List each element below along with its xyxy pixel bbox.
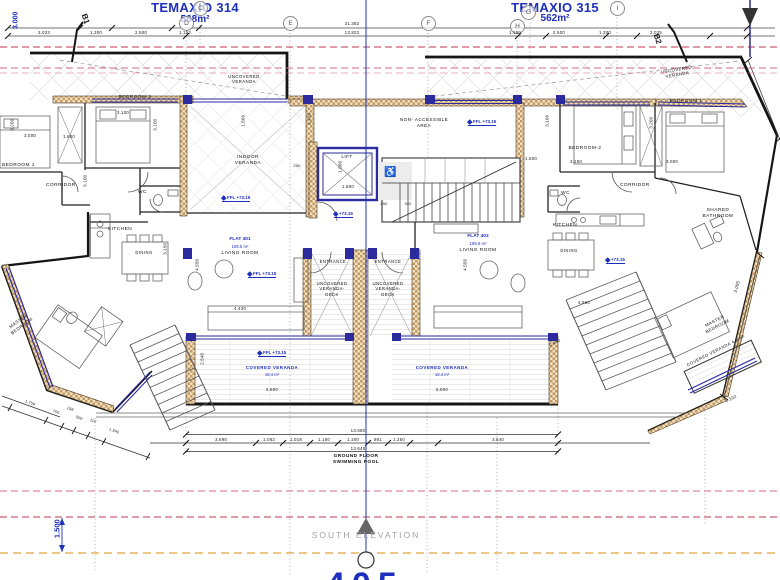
dim-bottom-6: 891 [368, 437, 388, 443]
room-label-shared-bath: SHARED BATHROOM [698, 208, 738, 220]
south-elevation-label: SOUTH ELEVATION [293, 530, 439, 541]
plot-left-area: 568m² [110, 14, 280, 27]
dim-lf-5: 3.200 [9, 110, 15, 140]
ffl-diamond-icon [247, 271, 252, 276]
flat401-label: FLAT 401 [220, 237, 260, 243]
covered-veranda-right-area: 18.4 m² [398, 372, 486, 377]
ffl-diamond-icon [257, 350, 262, 355]
entrance-right-label: ENTRANCE [366, 259, 410, 264]
flat401-area: 109.5 m² [220, 244, 260, 249]
dim-core-c: 250 [288, 164, 306, 169]
covered-veranda-right-label: COVERED VERANDA [398, 365, 486, 371]
dim-south-gap: 1.500 [52, 512, 61, 546]
dim-rf-6: 4.560 [566, 300, 602, 306]
covered-veranda-left-area: 18.4 m² [228, 372, 316, 377]
floor-plan-sheet: TEMAXIO 314 568m² TEMAXIO 315 562m² C D … [0, 0, 780, 580]
room-label-wc-right: WC [561, 191, 577, 197]
covered-veranda-left-label: COVERED VERANDA [228, 365, 316, 371]
external-stairs-right [566, 272, 676, 390]
dim-rf-7: 4.550 [462, 250, 468, 280]
dim-rf-1: 1.600 [518, 156, 544, 162]
dim-top-left-2: 1.300 [79, 30, 113, 36]
dim-top-left-1: 3.023 [27, 30, 61, 36]
dim-top-left-3: 2.500 [124, 30, 158, 36]
dim-bottom-8: 3.540 [485, 437, 511, 443]
entrance-left-label: ENTRANCE [311, 259, 355, 264]
room-label-kitchen-left: KITCHEN [108, 227, 160, 233]
room-label-bedroom2-right: BEDROOM-2 [557, 146, 613, 152]
veranda-deck-left-label: UNCOVERED VERANDA- DECK [308, 281, 356, 297]
dim-lf-10: 3.150 [162, 234, 168, 264]
flat402-area: 109.5 m² [458, 241, 498, 246]
grid-marker-f: F [421, 16, 436, 31]
non-accessible-area-label: NON- ACCESSIBLE AREA [390, 117, 458, 128]
dim-veranda-depth: 2.540 [199, 345, 205, 373]
room-label-bedroom2-left: BEDROOM 2 [107, 95, 163, 101]
dim-lf-9: 4.550 [194, 250, 200, 280]
grid-marker-c: C [193, 1, 208, 16]
room-label-living-right: LIVING ROOM [446, 248, 510, 254]
dim-veranda-left: 6.800 [248, 387, 296, 393]
room-label-wc-left: WC [138, 190, 154, 196]
room-label-indoor-veranda: INDOOR VERANDA [226, 155, 270, 167]
north-section-arrow-icon [742, 8, 758, 26]
flat402-label: FLAT 402 [458, 234, 498, 240]
dim-core-1: 1.910 [306, 104, 312, 134]
ffl-diamond-icon [467, 119, 472, 124]
dim-rf-3: 3.000 [656, 159, 688, 165]
ffl-label-indoor-veranda: FFL +73.15 [222, 195, 250, 202]
ffl-diamond-icon [333, 211, 338, 216]
dim-top-left-4: 1.152 [168, 30, 202, 36]
dim-lf-3: 3.000 [14, 133, 46, 139]
dim-bottom-3: 1.018 [283, 437, 309, 443]
dim-bottom-2: 1.082 [256, 437, 282, 443]
dim-lf-8: 4.430 [222, 306, 258, 312]
wheelchair-icon: ♿ [384, 167, 396, 180]
ffl-label-core: FFL +73.15 [468, 119, 496, 126]
staircase-core [378, 158, 520, 222]
room-label-corridor-right: CORRIDOR [620, 183, 668, 189]
grid-marker-g: G [521, 5, 536, 20]
dim-bottom-1: 3.690 [208, 437, 234, 443]
room-label-bedroom1-left: BEDROOM 1 [2, 163, 50, 169]
dim-top-right-1: 1.150 [498, 30, 532, 36]
dim-rf-2: 3.150 [560, 159, 592, 165]
ground-floor-pool-label: GROUND FLOOR SWIMMING POOL [316, 454, 396, 466]
veranda-deck-right-label: UNCOVERED VERANDA- DECK [364, 281, 412, 297]
dim-lift-h: 1.800 [337, 152, 343, 182]
ffl-label-dining-right: +73.15 [606, 257, 625, 264]
dim-left-edge: 3.000 [13, 5, 22, 35]
ffl-diamond-icon [221, 195, 226, 200]
room-label-dining-right: DINING [551, 248, 587, 253]
dim-top-right-4: 3.025 [639, 30, 673, 36]
dim-bottom-5: 1.100 [340, 437, 366, 443]
dim-lift-w: 1.800 [330, 184, 366, 190]
dim-total-mid: 13.823 [327, 30, 377, 36]
dim-core-a: 850 [374, 202, 394, 207]
dim-bottom-total-top: 13.680 [336, 428, 380, 434]
dim-bottom-7: 1.260 [386, 437, 412, 443]
room-label-living-left: LIVING ROOM [208, 251, 272, 257]
dim-lf-2: 3.100 [152, 110, 158, 140]
room-label-bedroom1-right: BEDROOM 1 [660, 99, 712, 105]
furniture [0, 106, 761, 393]
grid-marker-e: E [283, 16, 298, 31]
grid-marker-i: I [610, 1, 625, 16]
dim-bottom-total-bot: 13.648 [336, 446, 380, 452]
ffl-label-covered-veranda: FFL +73.15 [258, 350, 286, 357]
ffl-label-lobby: +73.15 [334, 211, 353, 218]
dim-top-right-2: 2.500 [542, 30, 576, 36]
room-label-dining-left: DINING [126, 250, 162, 255]
dim-lf-6: 5.100 [82, 166, 88, 196]
sheet-number: 405 [326, 566, 404, 580]
room-label-kitchen-right: KITCHEN [553, 223, 605, 229]
dim-rf-5: 3.200 [648, 108, 654, 138]
dim-total-top: 31.382 [327, 21, 377, 27]
dim-bottom-4: 1.100 [311, 437, 337, 443]
dim-core-b: 920 [398, 202, 418, 207]
dim-veranda-right: 6.800 [418, 387, 466, 393]
dim-lf-4: 1.600 [56, 134, 82, 140]
ffl-label-living-left: FFL +73.15 [248, 271, 276, 278]
dim-top-right-3: 1.300 [588, 30, 622, 36]
dim-lf-1: 3.100 [105, 110, 141, 116]
dim-lf-7: 1.600 [240, 106, 246, 136]
uncovered-veranda-left-label: UNCOVERED VERANDA [214, 74, 274, 85]
dim-rf-4: 3.100 [544, 106, 550, 136]
ffl-diamond-icon [605, 257, 610, 262]
